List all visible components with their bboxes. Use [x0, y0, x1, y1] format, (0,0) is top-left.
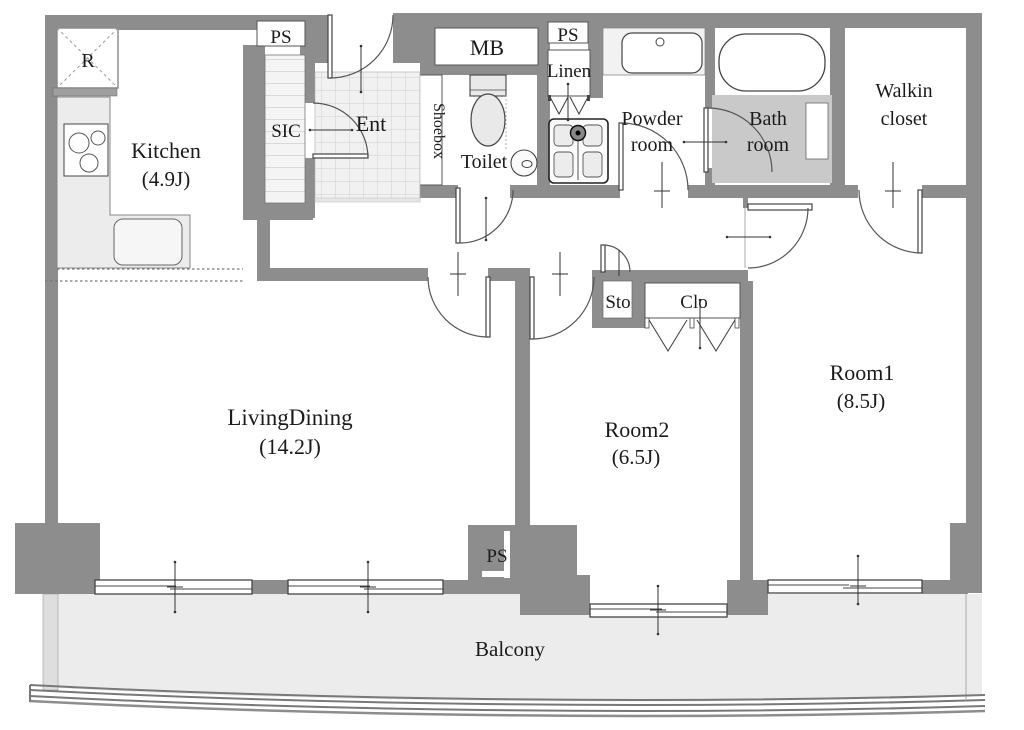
faucet-icon: [656, 38, 664, 46]
refrigerator-label: R: [81, 50, 95, 72]
window-room1: [768, 580, 922, 593]
powder-room-label: room: [631, 134, 674, 156]
room2-door-leaf: [530, 277, 534, 339]
wall-segment: [922, 580, 968, 594]
powder-door-leaf: [619, 123, 623, 190]
bifold-end: [645, 318, 649, 328]
storage-door-leaf: [601, 245, 605, 272]
entrance-door-leaf: [328, 15, 332, 78]
kitchen-sink: [114, 219, 182, 265]
closet-label: Clo: [680, 292, 707, 313]
wall-segment: [415, 185, 458, 198]
floor-plan: R PS SIC Ent Shoebox MB PS Linen Toilet …: [0, 0, 1024, 730]
wall-segment: [966, 13, 982, 593]
wall-segment: [305, 52, 315, 103]
wall-segment: [743, 192, 748, 208]
entrance-step: [315, 198, 420, 202]
toilet-tank: [470, 75, 506, 96]
walkin-closet-label: Walkin: [875, 80, 932, 102]
wall-segment: [423, 13, 982, 28]
wall-segment: [420, 65, 550, 75]
counter-edge: [53, 88, 117, 96]
kitchen-label: Kitchen: [131, 138, 201, 163]
wall-segment: [740, 281, 753, 580]
ps-mid-label: PS: [557, 25, 578, 46]
bath-room-label: room: [747, 134, 790, 156]
ps-top-label: PS: [270, 27, 291, 48]
hand-basin: [511, 150, 537, 176]
toilet-door-leaf: [456, 188, 460, 243]
living-dining-size-label: (14.2J): [259, 434, 321, 459]
room2-label: Room2: [605, 417, 670, 442]
wall-segment: [252, 580, 288, 594]
wall-segment: [592, 317, 645, 328]
washer-pan-plate: [583, 152, 602, 177]
room1-label: Room1: [830, 360, 895, 385]
walkin-door-leaf: [918, 190, 922, 253]
wall-segment: [243, 45, 265, 215]
entrance-label: Ent: [356, 111, 387, 136]
wall-segment: [537, 25, 550, 187]
bifold-end: [548, 95, 551, 101]
room1-size-label: (8.5J): [837, 389, 885, 413]
wall-segment: [950, 523, 968, 580]
living-dining-label: LivingDining: [227, 405, 353, 430]
entrance-area: [315, 72, 420, 202]
entrance-tiles: [315, 72, 420, 200]
bifold-end: [735, 318, 739, 328]
bath-door-leaf: [704, 108, 708, 172]
ps-notch: [482, 571, 510, 577]
wall-segment: [727, 580, 768, 615]
bifold-end: [690, 318, 694, 328]
toilet-bowl: [471, 94, 505, 146]
shoebox-label: Shoebox: [430, 103, 447, 159]
kitchen-size-label: (4.9J): [142, 167, 190, 191]
wall-segment: [688, 185, 858, 198]
room2-size-label: (6.5J): [612, 445, 660, 469]
linen-label: Linen: [547, 61, 592, 82]
walkin-closet-label: closet: [881, 108, 928, 130]
storage-label: Sto: [605, 292, 630, 313]
wall-segment: [520, 575, 590, 615]
toilet-label: Toilet: [461, 151, 508, 173]
ps-bottom-label: PS: [486, 546, 507, 567]
washer-pan-plate: [554, 152, 573, 177]
washer-drain-center: [576, 131, 581, 136]
floor-plan-canvas: R PS SIC Ent Shoebox MB PS Linen Toilet …: [0, 0, 1024, 730]
balcony-left-divider: [43, 594, 58, 690]
wall-segment: [830, 28, 845, 197]
wall-segment: [922, 185, 966, 198]
room1-door-leaf: [748, 204, 812, 210]
bifold-end: [587, 95, 590, 101]
powder-room-fixtures: [603, 28, 705, 75]
meter-box-label: MB: [470, 35, 504, 60]
washer-pan: [549, 119, 608, 183]
wall-segment: [58, 580, 95, 594]
wall-segment: [257, 268, 428, 281]
bathtub: [719, 34, 825, 91]
sic-door-leaf: [313, 154, 368, 158]
wall-segment: [510, 185, 620, 198]
bath-room-label: Bath: [749, 108, 787, 130]
sic-label: SIC: [271, 121, 301, 142]
bath-counter: [806, 103, 828, 159]
living-door-leaf: [486, 277, 490, 337]
balcony-label: Balcony: [475, 637, 545, 661]
powder-room-label: Powder: [621, 108, 682, 130]
